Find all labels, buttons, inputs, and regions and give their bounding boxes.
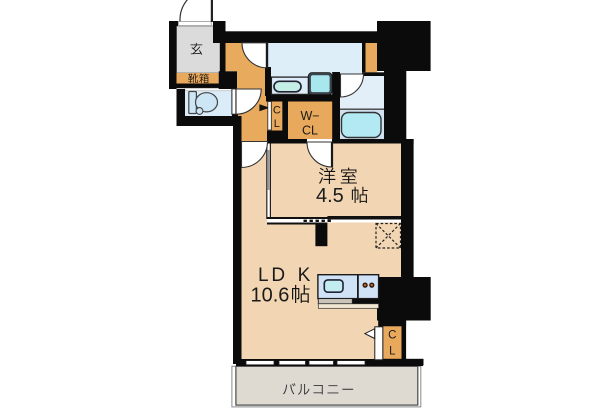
- svg-text:W−: W−: [300, 109, 319, 123]
- svg-text:K: K: [298, 265, 311, 286]
- svg-text:CL: CL: [302, 124, 318, 138]
- svg-text:C: C: [273, 105, 281, 117]
- svg-text:D: D: [271, 265, 285, 286]
- svg-text:10.6: 10.6: [251, 285, 290, 307]
- svg-text:L: L: [389, 346, 396, 358]
- svg-text:C: C: [388, 330, 396, 342]
- svg-text:L: L: [258, 265, 269, 286]
- svg-text:4.5: 4.5: [316, 185, 344, 207]
- svg-text:L: L: [274, 118, 280, 130]
